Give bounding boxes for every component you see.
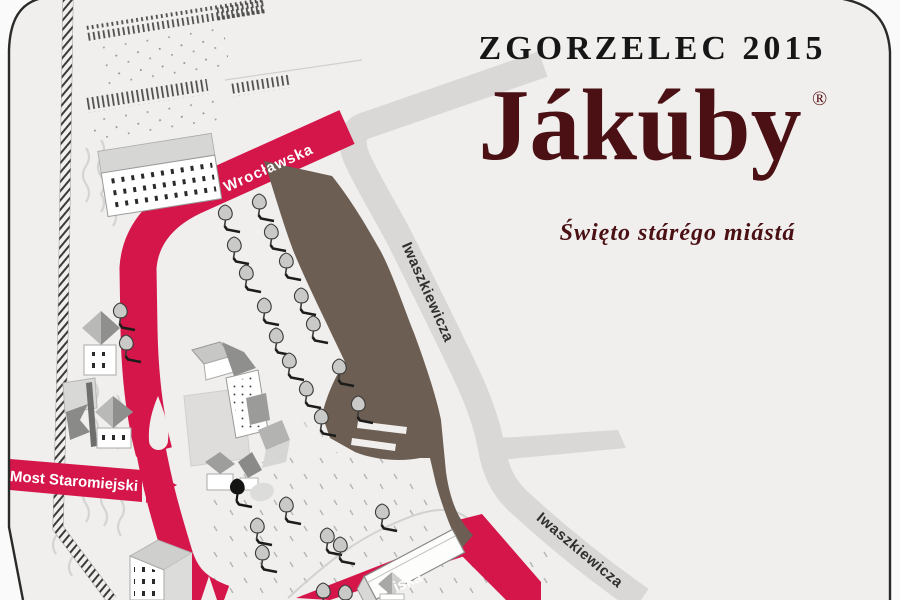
festival-map-poster: Wrocławska Most Staromiejski Iwaszkiewic…	[0, 0, 900, 600]
festival-subtitle: Święto stárégo miástá	[505, 220, 850, 247]
registered-mark-icon: ®	[812, 88, 827, 111]
festival-logo: Jákúby	[440, 62, 840, 190]
